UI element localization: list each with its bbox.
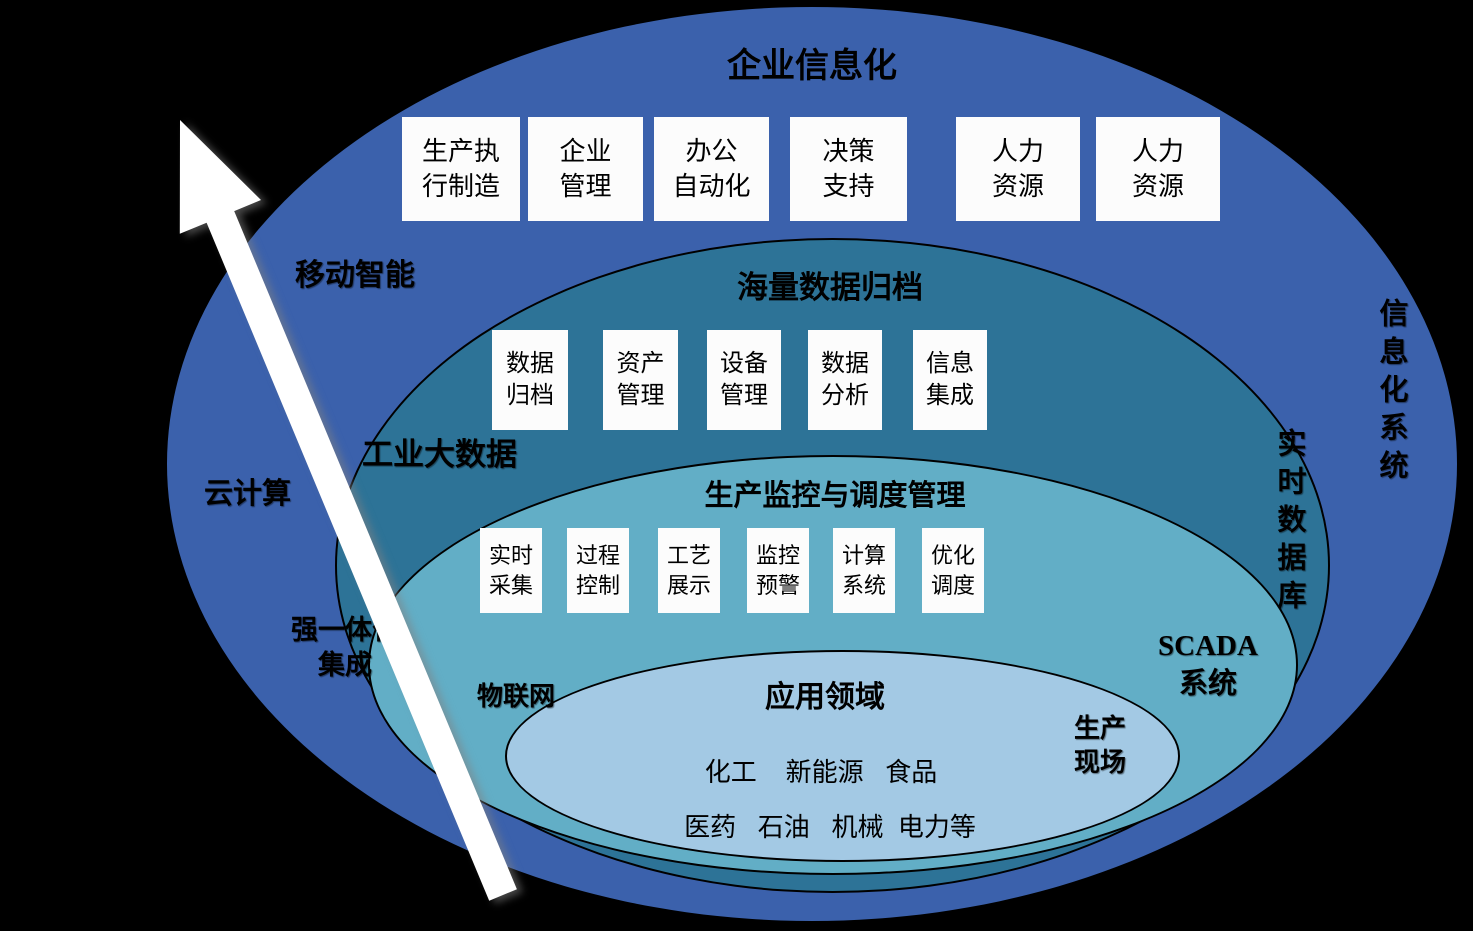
box-mes: 生产执 行制造 bbox=[402, 117, 520, 221]
label-industrial-big-data: 工业大数据 bbox=[362, 429, 517, 474]
box-asset-management: 资产 管理 bbox=[603, 330, 678, 430]
title-mass-data-archive: 海量数据归档 bbox=[737, 262, 923, 307]
label-production-site: 生产 现场 bbox=[1074, 712, 1126, 780]
box-optimized-dispatch: 优化 调度 bbox=[922, 528, 984, 613]
box-human-resources-2: 人力 资源 bbox=[1096, 117, 1220, 221]
box-decision-support: 决策 支持 bbox=[790, 117, 907, 221]
box-human-resources-1: 人力 资源 bbox=[956, 117, 1080, 221]
box-data-analysis: 数据 分析 bbox=[808, 330, 882, 430]
title-production-monitoring: 生产监控与调度管理 bbox=[704, 472, 965, 514]
box-enterprise-management: 企业 管理 bbox=[528, 117, 643, 221]
label-cloud-computing: 云计算 bbox=[204, 470, 291, 512]
box-information-integration: 信息 集成 bbox=[913, 330, 987, 430]
label-scada-system: SCADA 系统 bbox=[1158, 628, 1258, 703]
box-process-control: 过程 控制 bbox=[567, 528, 629, 613]
box-monitoring-alarm: 监控 预警 bbox=[747, 528, 809, 613]
label-informatization-system: 信息化系统 bbox=[1370, 298, 1412, 488]
label-iot: 物联网 bbox=[477, 676, 555, 713]
label-mobile-intelligence: 移动智能 bbox=[295, 250, 415, 294]
industries-row-2: 医药 石油 机械 电力等 bbox=[684, 807, 976, 844]
box-equipment-management: 设备 管理 bbox=[707, 330, 781, 430]
label-strong-integration: 强一体化 集成 bbox=[291, 613, 399, 683]
box-process-display: 工艺 展示 bbox=[658, 528, 720, 613]
box-office-automation: 办公 自动化 bbox=[654, 117, 769, 221]
box-computing-system: 计算 系统 bbox=[833, 528, 895, 613]
diagram-canvas: 企业信息化 海量数据归档 生产监控与调度管理 应用领域 生产执 行制造 企业 管… bbox=[0, 0, 1473, 931]
box-data-archive: 数据 归档 bbox=[492, 330, 568, 430]
industries-row-1: 化工 新能源 食品 bbox=[705, 752, 938, 789]
box-realtime-collection: 实时 采集 bbox=[480, 528, 542, 613]
title-enterprise-informatization: 企业信息化 bbox=[727, 38, 897, 87]
label-realtime-database: 实时数据库 bbox=[1268, 428, 1310, 618]
title-application-domain: 应用领域 bbox=[765, 672, 885, 716]
